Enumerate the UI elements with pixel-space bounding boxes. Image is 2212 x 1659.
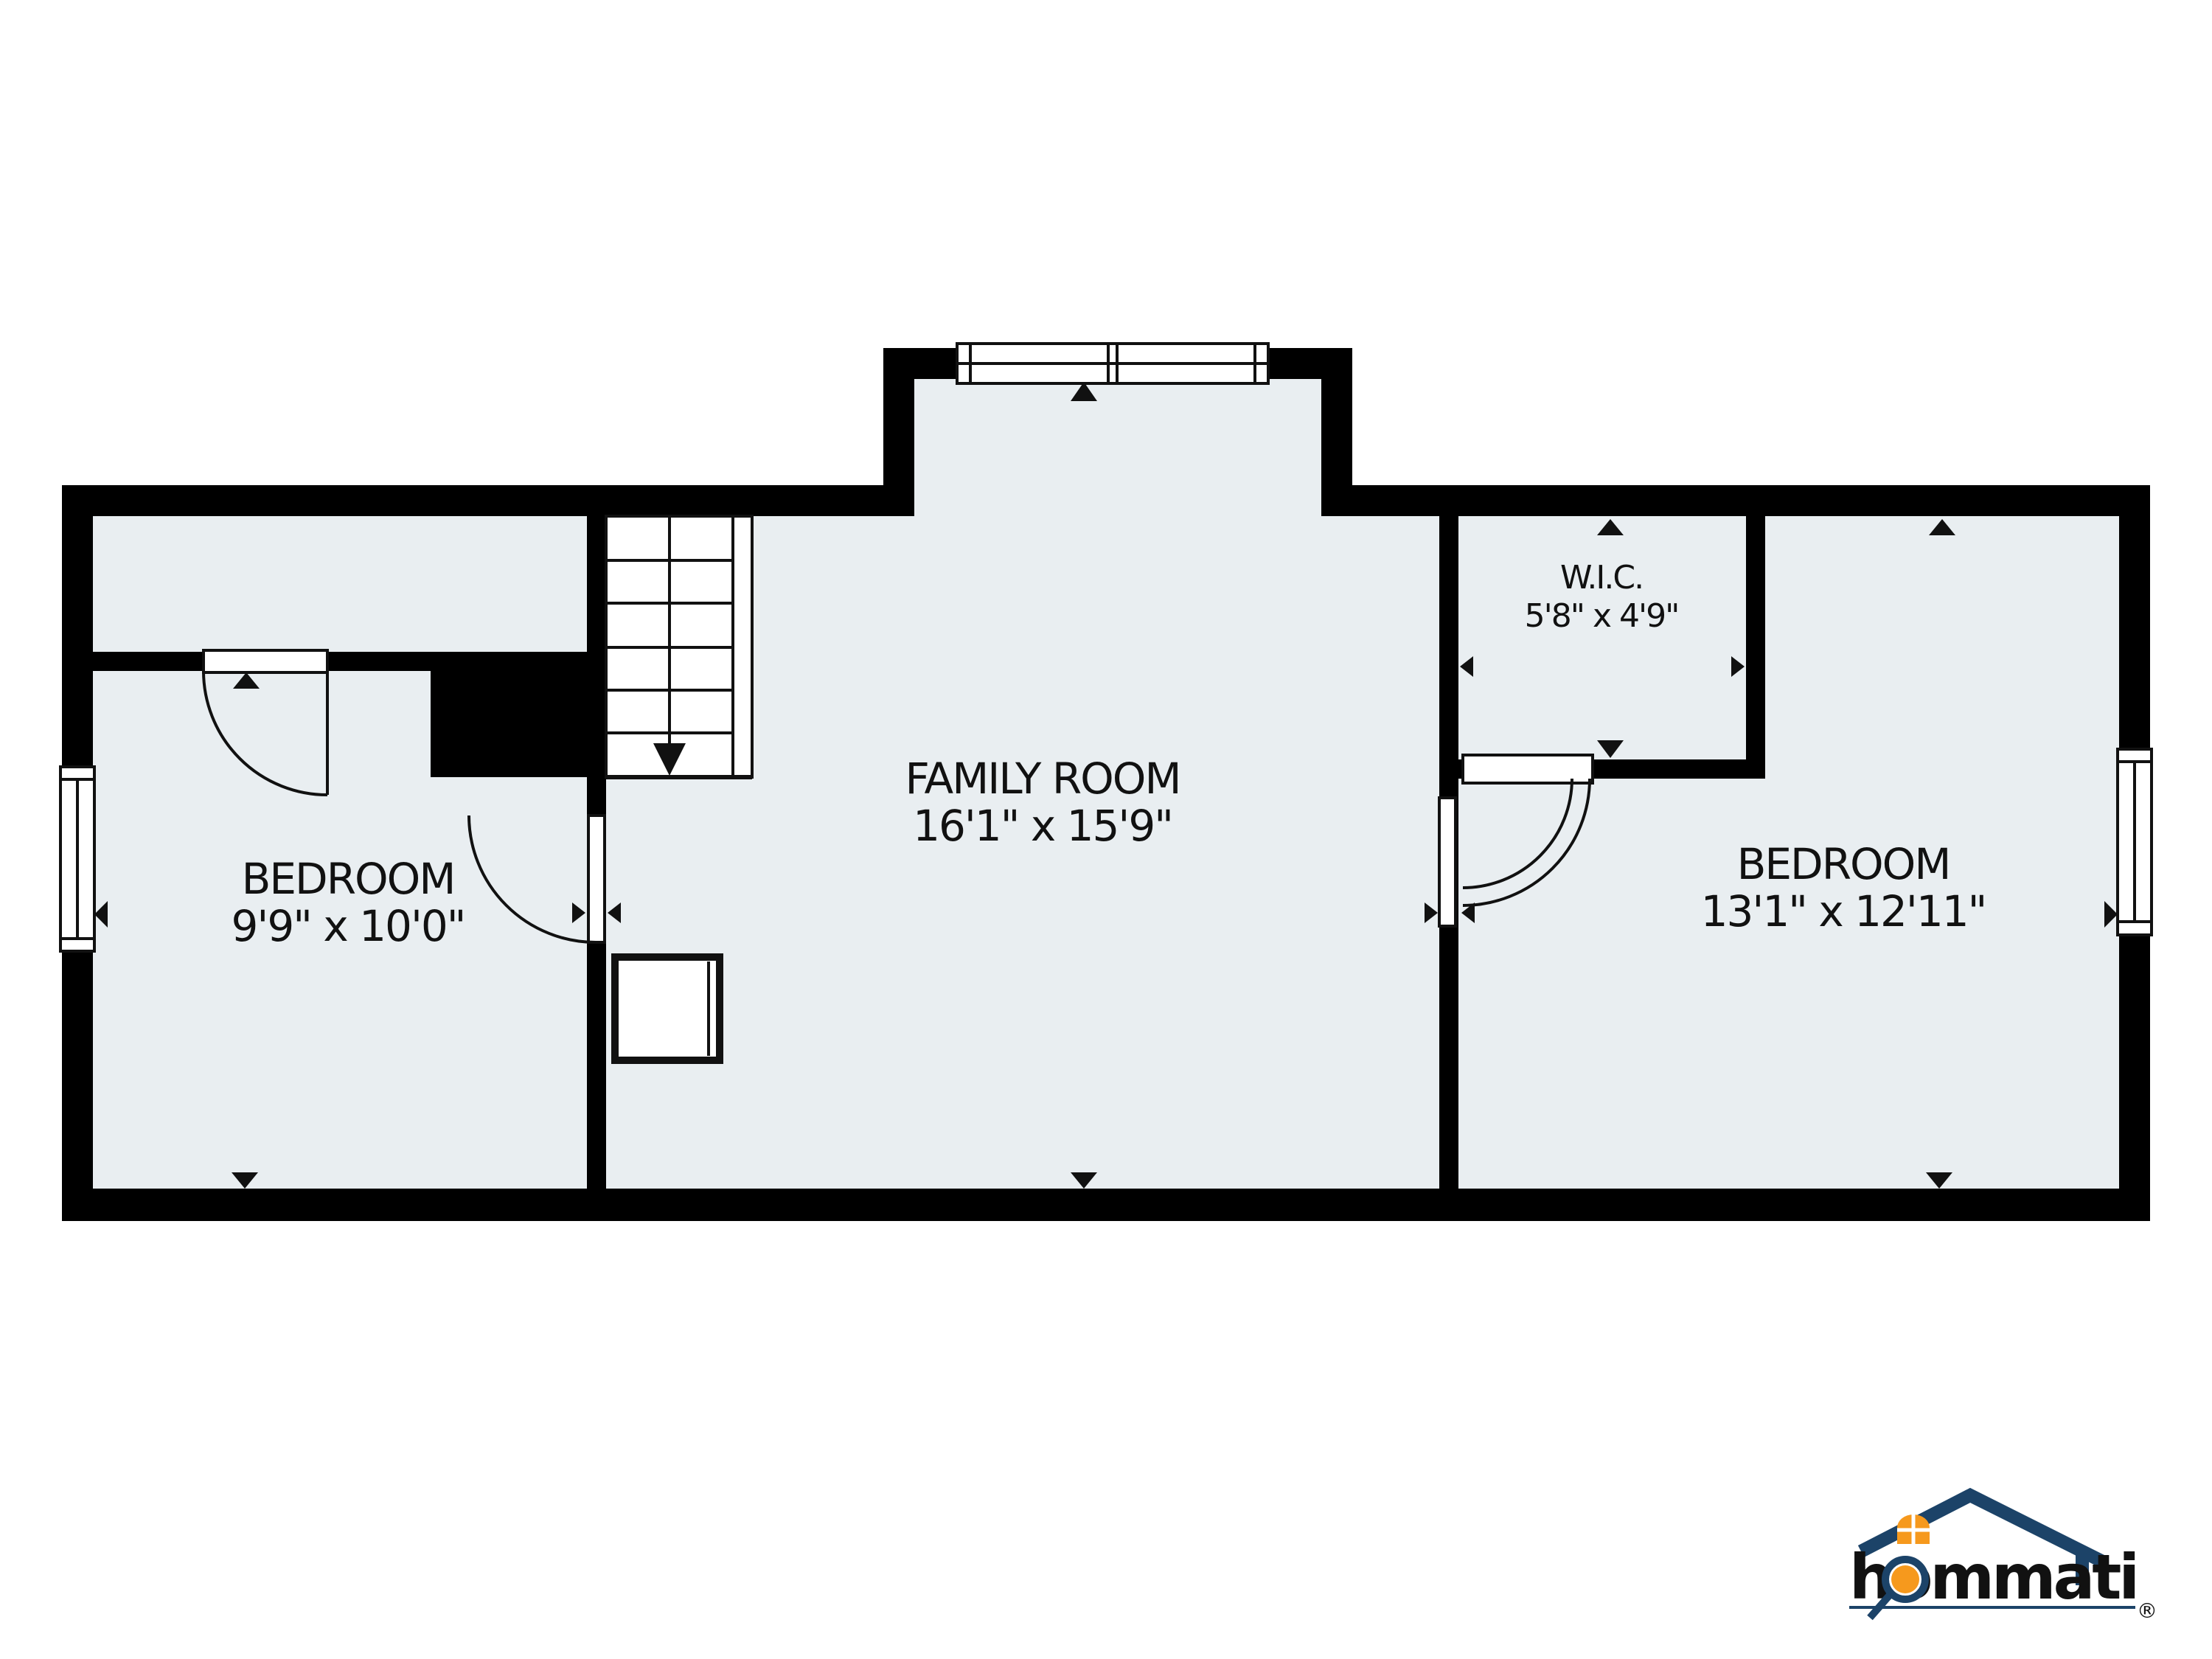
- bedroom2-name: BEDROOM: [1737, 839, 1950, 889]
- wall-bedroom1-top: [93, 652, 606, 671]
- wic-name: W.I.C.: [1560, 559, 1643, 597]
- wall-wic-right: [1746, 516, 1765, 770]
- bedroom1-name: BEDROOM: [242, 854, 455, 904]
- logo-registered-mark: ®: [2137, 1599, 2157, 1623]
- door-leaf-open: [1439, 798, 1455, 926]
- wall-bottom: [62, 1189, 2150, 1221]
- wall-bump-left: [883, 348, 914, 516]
- door-leaf-closed: [588, 815, 605, 942]
- bedroom2-dims: 13'1" x 12'11": [1701, 886, 1986, 936]
- wall-top-left-segment: [62, 485, 914, 516]
- bedroom1-dims: 9'9" x 10'0": [232, 901, 465, 951]
- staircase: [606, 516, 752, 777]
- logo-house-window-icon: [1897, 1514, 1930, 1544]
- wic-dims: 5'8" x 4'9": [1525, 597, 1679, 635]
- wall-top-right-segment: [1321, 485, 2150, 516]
- furniture-square: [615, 957, 720, 1060]
- wall-bump-right: [1321, 348, 1352, 516]
- window-left-bedroom1: [60, 767, 94, 951]
- hommati-logo: hommati ®: [1849, 1495, 2157, 1623]
- family-room-name: FAMILY ROOM: [905, 754, 1180, 804]
- family-room-dims: 16'1" x 15'9": [913, 801, 1172, 851]
- window-right-bedroom2: [2118, 749, 2152, 935]
- wall-block-mass: [431, 671, 587, 777]
- window-bump-top: [957, 344, 1268, 383]
- door-leaf-closed: [204, 650, 327, 672]
- floor-plan: BEDROOM 9'9" x 10'0" FAMILY ROOM 16'1" x…: [0, 0, 2212, 1659]
